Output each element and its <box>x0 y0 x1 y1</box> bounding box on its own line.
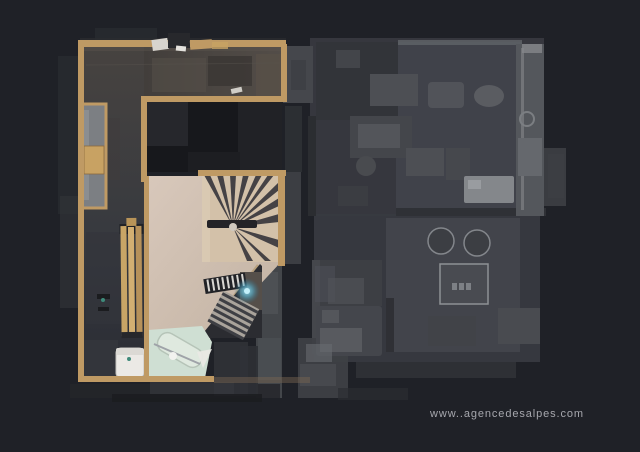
floor-void <box>146 102 282 172</box>
watermark: www..agencedesalpes.com <box>430 408 590 420</box>
dollhouse-view <box>0 0 640 452</box>
floorplan-viewer: www..agencedesalpes.com <box>0 0 640 452</box>
spiral-staircase[interactable] <box>202 174 279 262</box>
wc-toilet <box>116 348 144 378</box>
bench <box>119 218 144 338</box>
bathroom <box>148 326 212 378</box>
